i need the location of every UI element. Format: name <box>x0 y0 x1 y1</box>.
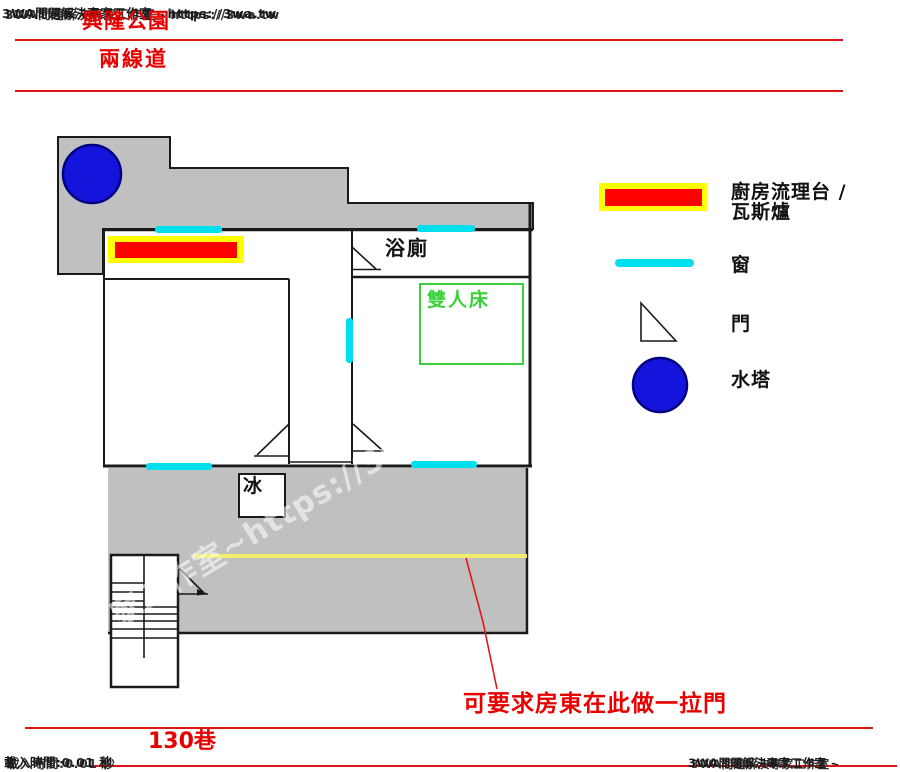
kitchen-counter-plan <box>108 236 244 263</box>
window-bathroom-top <box>417 225 475 232</box>
park-label: 興隆公園 <box>82 10 170 32</box>
legend-counter-swatch <box>599 183 707 211</box>
load-time-watermark: 載入時間:0.01 秒 <box>4 752 112 771</box>
window-kitchen-top <box>155 226 222 233</box>
bathroom-label: 浴廁 <box>385 238 429 259</box>
legend-window-label: 窗 <box>731 256 750 276</box>
sliding-door-annotation: 可要求房東在此做一拉門 <box>463 692 727 716</box>
window-corridor <box>346 318 353 363</box>
legend-door-label: 門 <box>731 315 750 335</box>
door-livingroom <box>254 424 289 456</box>
window-bedroom-bottom <box>411 461 477 468</box>
door-bathroom <box>352 247 381 270</box>
floor-plan-page: 家工作室~https://3wa.tw 3WA問題解決專家工作室 - https… <box>0 0 900 772</box>
road-label: 兩線道 <box>99 48 168 70</box>
legend-swatches <box>599 183 707 412</box>
water-tower-plan <box>63 145 121 203</box>
legend-watertower-swatch <box>633 358 687 412</box>
fridge-label: 冰 <box>243 477 262 497</box>
legend-counter-label-line1: 廚房流理台 / <box>731 183 847 203</box>
legend-counter-label-line2: 瓦斯爐 <box>731 203 791 223</box>
double-bed-label: 雙人床 <box>427 291 490 311</box>
site-watermark-bottom: 3WA問題解決專家工作室 - https://3wa.tw <box>688 755 900 772</box>
window-livingroom-bottom <box>146 463 212 470</box>
lane-label: 130巷 <box>148 730 216 753</box>
legend-watertower-label: 水塔 <box>731 371 771 391</box>
legend-door-swatch <box>641 303 676 341</box>
